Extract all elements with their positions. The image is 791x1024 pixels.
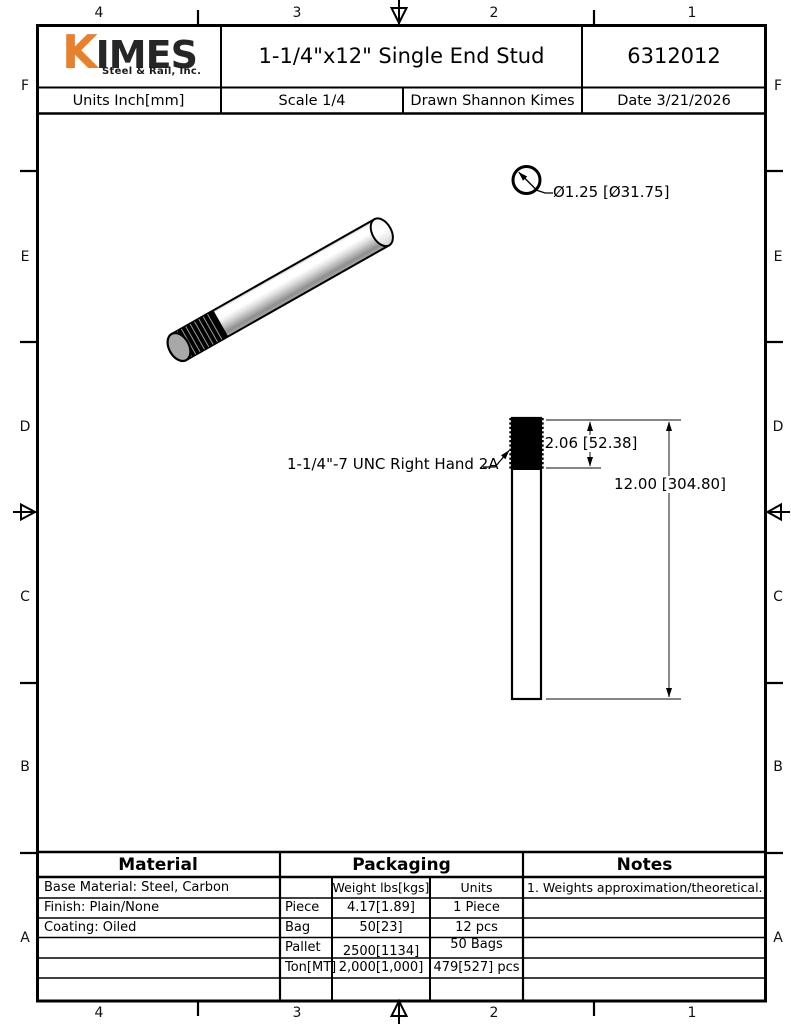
packaging-row-weight: 2,000[1,000] bbox=[332, 958, 430, 978]
dimension-lines bbox=[546, 420, 681, 699]
logo-tagline: Steel & Rail, Inc. bbox=[102, 67, 201, 77]
zone-col-label-top-2: 2 bbox=[480, 4, 508, 22]
zone-col-label-top-4: 4 bbox=[85, 4, 113, 22]
center-mark-left-icon bbox=[13, 505, 36, 520]
zone-row-label-right-e: E bbox=[767, 248, 789, 266]
material-base-cell: Base Material: Steel, Carbon bbox=[44, 877, 274, 898]
diameter-leader-line bbox=[536, 190, 553, 193]
notes-row: 1. Weights approximation/theoretical. bbox=[527, 877, 763, 898]
thread-spec-label: 1-1/4"-7 UNC Right Hand 2A bbox=[287, 456, 481, 473]
packaging-table-header: Packaging bbox=[280, 852, 523, 877]
material-finish-cell: Finish: Plain/None bbox=[44, 898, 274, 918]
packaging-row-units: 50 Bags bbox=[430, 934, 523, 955]
packaging-row-label: Bag bbox=[285, 918, 330, 937]
zone-col-label-bottom-2: 2 bbox=[480, 1004, 508, 1022]
center-mark-top-icon bbox=[392, 0, 407, 25]
drawing-title: 1-1/4"x12" Single End Stud bbox=[221, 25, 582, 87]
packaging-row-label: Piece bbox=[285, 898, 330, 918]
zone-row-label-left-b: B bbox=[14, 758, 36, 776]
packaging-weight-column-header: Weight lbs[kgs] bbox=[332, 877, 430, 898]
part-number: 6312012 bbox=[582, 25, 766, 87]
zone-row-label-right-d: D bbox=[767, 418, 789, 436]
zone-row-label-left-f: F bbox=[14, 77, 36, 95]
diameter-dimension-label: Ø1.25 [Ø31.75] bbox=[553, 184, 669, 201]
material-table-header: Material bbox=[36, 852, 280, 877]
zone-col-label-top-3: 3 bbox=[283, 4, 311, 22]
stud-end-view bbox=[513, 167, 553, 194]
zone-row-label-left-c: C bbox=[14, 588, 36, 606]
zone-row-label-right-f: F bbox=[767, 77, 789, 95]
notes-table-header: Notes bbox=[523, 852, 766, 877]
overall-length-dimension-label: 12.00 [304.80] bbox=[618, 476, 722, 493]
zone-col-label-top-1: 1 bbox=[678, 4, 706, 22]
material-coating-cell: Coating: Oiled bbox=[44, 918, 274, 937]
drawing-sheet: 4 3 2 1 4 3 2 1 F E D C B A F E D C B A … bbox=[0, 0, 791, 1024]
zone-row-label-right-a: A bbox=[767, 929, 789, 947]
packaging-row-label: Pallet bbox=[285, 937, 330, 958]
packaging-row-units: 479[527] pcs bbox=[430, 958, 523, 978]
units-field: Units Inch[mm] bbox=[36, 88, 221, 113]
company-logo: KIMES Steel & Rail, Inc. bbox=[62, 33, 212, 81]
date-field: Date 3/21/2026 bbox=[582, 88, 766, 113]
zone-row-label-left-e: E bbox=[14, 248, 36, 266]
logo-k-letter: K bbox=[62, 25, 96, 79]
zone-row-label-left-a: A bbox=[14, 929, 36, 947]
stud-isometric-view bbox=[163, 214, 398, 365]
drawn-by-field: Drawn Shannon Kimes bbox=[403, 88, 582, 113]
center-mark-right-icon bbox=[767, 505, 790, 520]
zone-row-label-right-b: B bbox=[767, 758, 789, 776]
zone-col-label-bottom-1: 1 bbox=[678, 1004, 706, 1022]
thread-length-dimension-label: 2.06 [52.38] bbox=[549, 435, 633, 452]
stud-side-view bbox=[511, 418, 543, 699]
packaging-row-units: 1 Piece bbox=[430, 898, 523, 918]
packaging-units-column-header: Units bbox=[430, 877, 523, 898]
zone-col-label-bottom-3: 3 bbox=[283, 1004, 311, 1022]
packaging-row-label: Ton[MT] bbox=[285, 958, 332, 978]
zone-col-label-bottom-4: 4 bbox=[85, 1004, 113, 1022]
zone-row-label-right-c: C bbox=[767, 588, 789, 606]
center-mark-bottom-icon bbox=[392, 1000, 407, 1024]
packaging-row-weight: 4.17[1.89] bbox=[332, 898, 430, 918]
scale-field: Scale 1/4 bbox=[221, 88, 403, 113]
packaging-row-weight: 50[23] bbox=[332, 918, 430, 937]
zone-row-label-left-d: D bbox=[14, 418, 36, 436]
